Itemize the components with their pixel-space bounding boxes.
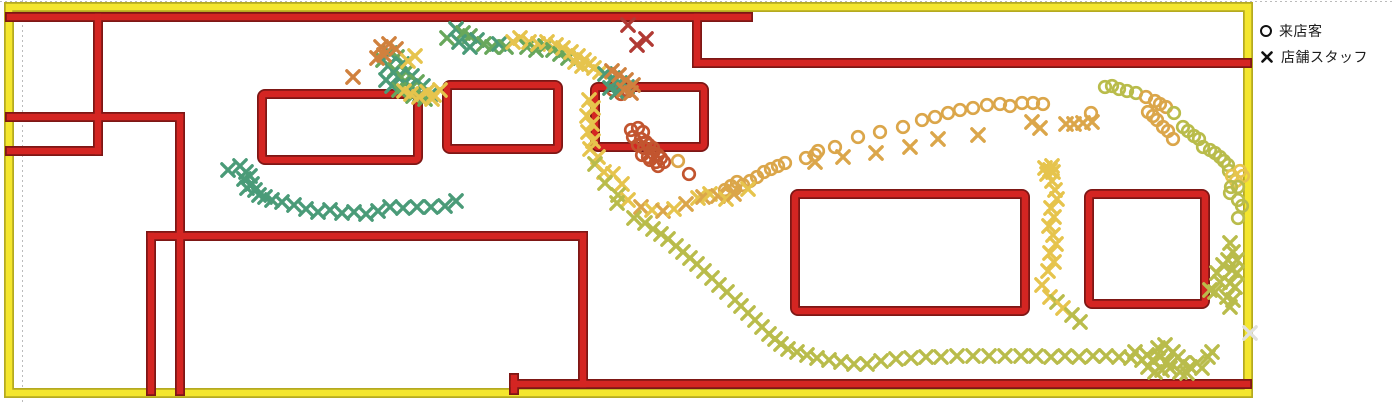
floorplan-fixtures	[262, 85, 1205, 311]
store-trajectory-chart: 来店客 店舗スタッフ	[0, 0, 1392, 404]
legend-label-staff: 店舗スタッフ	[1281, 47, 1368, 67]
legend: 来店客 店舗スタッフ	[1260, 20, 1368, 68]
legend-item-customer: 来店客	[1260, 20, 1368, 42]
legend-item-staff: 店舗スタッフ	[1260, 46, 1368, 68]
legend-label-customer: 来店客	[1279, 21, 1323, 41]
floor-map-svg	[0, 0, 1392, 404]
customer-circle-icon	[1260, 25, 1272, 37]
staff-x-icon	[1260, 50, 1274, 64]
